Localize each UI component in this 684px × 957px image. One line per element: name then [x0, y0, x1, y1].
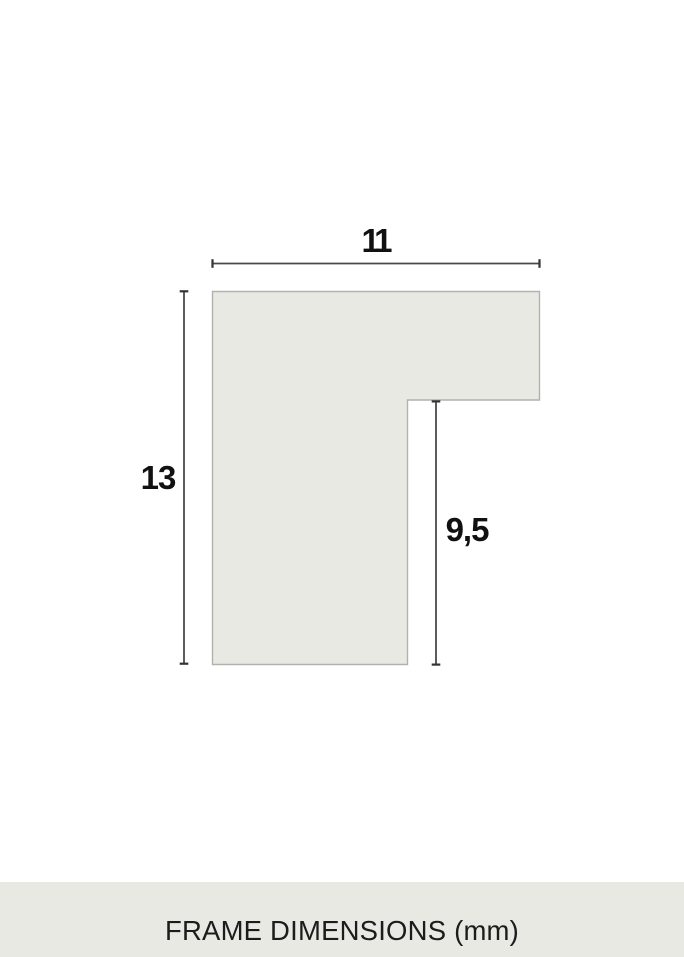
- svg-text:11: 11: [362, 222, 393, 259]
- svg-text:13: 13: [141, 459, 176, 496]
- svg-text:9,5: 9,5: [446, 511, 490, 548]
- svg-text:FRAME DIMENSIONS (mm): FRAME DIMENSIONS (mm): [165, 915, 519, 946]
